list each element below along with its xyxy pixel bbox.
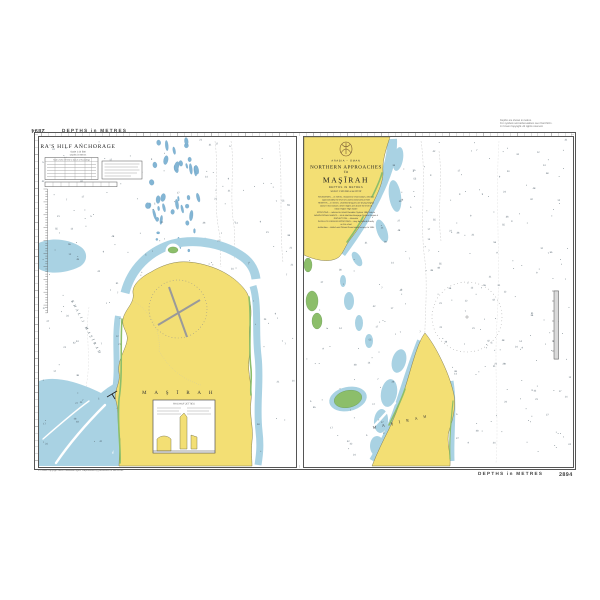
sounding-value: 31 — [231, 267, 234, 270]
chart-note-line: above Chart Datum; other heights are abo… — [320, 204, 372, 207]
sounding-value: 21 — [289, 246, 292, 249]
sounding-value: 17 — [390, 306, 393, 309]
coral-patch — [157, 206, 159, 211]
sounding-dot — [379, 321, 380, 322]
sounding-value: 55 — [312, 406, 315, 409]
sounding-value: 27 — [320, 280, 323, 283]
sounding-value: 14 — [339, 326, 342, 329]
sounding-value: 21 — [63, 346, 66, 349]
sounding-value: 48 — [430, 269, 433, 272]
sounding-dot — [557, 433, 558, 434]
sounding-dot — [255, 323, 256, 324]
sounding-dot — [127, 251, 128, 252]
sounding-dot — [268, 322, 269, 323]
sounding-dot — [506, 389, 507, 390]
sounding-value: 55 — [412, 168, 415, 171]
sounding-dot — [353, 417, 354, 418]
sounding-dot — [512, 260, 513, 261]
sounding-dot — [53, 194, 54, 195]
sounding-value: 14 — [564, 395, 567, 398]
sounding-value: 12 — [536, 150, 539, 153]
sounding-dot — [520, 398, 521, 399]
sounding-dot — [42, 259, 43, 260]
sounding-value: 12 — [557, 198, 560, 201]
sounding-dot — [106, 192, 107, 193]
sounding-value: 7 — [117, 291, 119, 294]
sounding-dot — [319, 309, 320, 310]
sounding-value: 21 — [449, 229, 452, 232]
sounding-value: 17 — [375, 325, 378, 328]
sounding-dot — [152, 250, 153, 251]
sounding-value: 9 — [521, 346, 523, 349]
sounding-value: 21 — [276, 380, 279, 383]
sounding-value: 36 — [456, 231, 459, 234]
sounding-dot — [561, 263, 562, 264]
coral-patch — [172, 146, 176, 154]
sounding-value: 21 — [439, 301, 442, 304]
sounding-dot — [372, 217, 373, 218]
sounding-dot — [141, 271, 142, 272]
sounding-dot — [530, 421, 531, 422]
green-patch-1 — [304, 258, 312, 272]
sounding-dot — [287, 204, 288, 205]
sounding-dot — [49, 274, 50, 275]
sounding-dot — [326, 327, 327, 328]
sounding-dot — [164, 152, 165, 153]
sounding-value: 48 — [353, 363, 356, 366]
country-label: ARABIA – OMAN — [331, 159, 360, 162]
sounding-value: 24 — [568, 443, 571, 446]
sounding-value: 9 — [150, 158, 152, 161]
sounding-value: 17 — [81, 195, 84, 198]
sounding-dot — [339, 388, 340, 389]
right-panel-map: 3642127245593121149521489142492455429724… — [304, 137, 573, 467]
sounding-dot — [549, 332, 550, 333]
sounding-value: 7 — [275, 200, 277, 203]
sounding-value: 21 — [160, 220, 163, 223]
sounding-value: 14 — [205, 175, 208, 178]
sounding-dot — [343, 283, 344, 284]
coral-patch — [162, 155, 168, 165]
sounding-dot — [284, 419, 285, 420]
sounding-dot — [536, 385, 537, 386]
sounding-dot — [552, 278, 553, 279]
sounding-value: 5 — [154, 202, 156, 205]
sounding-value: 36 — [76, 374, 79, 377]
sounding-value: 24 — [75, 339, 78, 342]
coral-patch — [187, 249, 189, 252]
sounding-dot — [152, 208, 153, 209]
sounding-dot — [253, 300, 254, 301]
sounding-dot — [371, 357, 372, 358]
depths-label: DEPTHS IN METRES — [328, 186, 362, 189]
islet-green — [168, 246, 178, 252]
chart-note-line: PROJECTION.....Mercator — [333, 216, 358, 219]
sounding-dot — [545, 343, 546, 344]
chart-number-bottom-right: 2894 — [559, 472, 573, 478]
sounding-dot — [414, 196, 415, 197]
sounding-value: 31 — [66, 314, 69, 317]
sounding-dot — [521, 265, 522, 266]
sounding-dot — [560, 259, 561, 260]
sounding-dot — [84, 218, 85, 219]
sounding-dot — [467, 282, 468, 283]
sounding-value: 7 — [65, 198, 67, 201]
sounding-value: 17 — [235, 222, 238, 225]
sounding-value: 42 — [372, 304, 375, 307]
sounding-value: 48 — [437, 266, 440, 269]
sounding-value: 14 — [427, 238, 430, 241]
scale-strip — [45, 182, 117, 187]
sounding-value: 17 — [176, 191, 179, 194]
sounding-value: 12 — [70, 227, 73, 230]
sounding-value: 36 — [287, 233, 290, 236]
sounding-dot — [484, 366, 485, 367]
sounding-value: 7 — [408, 257, 410, 260]
sounding-dot — [547, 159, 548, 160]
sounding-value: 42 — [533, 389, 536, 392]
coral-patch — [155, 195, 160, 203]
sounding-dot — [378, 351, 379, 352]
sounding-value: 9 — [481, 192, 483, 195]
sounding-dot — [54, 249, 55, 250]
sounding-value: 31 — [364, 241, 367, 244]
sounding-dot — [475, 293, 476, 294]
sounding-value: 12 — [470, 286, 473, 289]
sounding-value: 21 — [439, 325, 442, 328]
sounding-dot — [452, 366, 453, 367]
sounding-value: 42 — [530, 197, 533, 200]
sounding-dot — [525, 408, 526, 409]
left-panel-title: RA'S HILF ANCHORAGE — [40, 144, 115, 150]
sounding-dot — [273, 246, 274, 247]
title-line-3: MAŞĪRAH — [322, 175, 368, 184]
sounding-value: 9 — [469, 214, 471, 217]
inset-title: RA'S HILF JETTIES — [173, 402, 195, 405]
sounding-dot — [221, 232, 222, 233]
coral-patch — [185, 163, 188, 168]
sounding-value: 9 — [274, 312, 276, 315]
sounding-dot — [401, 191, 402, 192]
sounding-dot — [450, 199, 451, 200]
coral-patch — [155, 238, 157, 240]
sounding-value: 21 — [488, 275, 491, 278]
sounding-dot — [437, 293, 438, 294]
sounding-dot — [43, 441, 44, 442]
sounding-value: 12 — [464, 299, 467, 302]
chart-note-line: NAVIGATIONAL MARKS.....IALA Maritime Buo… — [313, 213, 378, 216]
sounding-value: 48 — [501, 338, 504, 341]
sounding-dot — [243, 189, 244, 190]
sounding-value: 48 — [444, 340, 447, 343]
sounding-value: 42 — [41, 180, 44, 183]
sounding-dot — [479, 189, 480, 190]
sounding-dot — [276, 418, 277, 419]
sounding-dot — [551, 215, 552, 216]
sounding-dot — [486, 347, 487, 348]
sounding-value: 7 — [464, 309, 466, 312]
sounding-dot — [456, 222, 457, 223]
sounding-dot — [270, 183, 271, 184]
sounding-dot — [490, 421, 491, 422]
sounding-dot — [378, 419, 379, 420]
sounding-dot — [58, 232, 59, 233]
sounding-value: 31 — [497, 284, 500, 287]
sounding-dot — [480, 329, 481, 330]
sounding-dot — [106, 302, 107, 303]
sounding-dot — [84, 209, 85, 210]
sounding-value: 24 — [515, 345, 518, 348]
sounding-value: 7 — [284, 342, 286, 345]
sounding-dot — [358, 348, 359, 349]
sounding-value: 24 — [353, 453, 356, 456]
sounding-dot — [461, 174, 462, 175]
sounding-dot — [514, 296, 515, 297]
sounding-value: 9 — [102, 250, 104, 253]
sounding-dot — [254, 186, 255, 187]
sounding-value: 55 — [493, 241, 496, 244]
sounding-value: 17 — [215, 142, 218, 145]
sounding-dot — [560, 433, 561, 434]
sounding-dot — [474, 142, 475, 143]
tidal-table-title: Tidal Levels referred to Datum of Soundi… — [53, 158, 90, 161]
sounding-dot — [353, 270, 354, 271]
sounding-dot — [425, 270, 426, 271]
island-name-label: M A Ş Ī R A H — [142, 390, 216, 396]
chart-note-line: on this chart — [340, 222, 352, 225]
sounding-dot — [164, 238, 165, 239]
sounding-value: 48 — [545, 171, 548, 174]
sounding-value: 9 — [227, 177, 229, 180]
sounding-value: 42 — [399, 289, 402, 292]
sounding-value: 9 — [511, 219, 513, 222]
sounding-dot — [464, 234, 465, 235]
sounding-value: 48 — [400, 198, 403, 201]
inset-pier-east — [191, 435, 197, 449]
sounding-dot — [208, 263, 209, 264]
sounding-value: 24 — [506, 170, 509, 173]
sounding-dot — [76, 242, 77, 243]
coral-patch — [173, 161, 180, 171]
sounding-value: 55 — [55, 227, 58, 230]
sounding-dot — [189, 260, 190, 261]
sounding-dot — [481, 287, 482, 288]
sounding-value: 42 — [487, 339, 490, 342]
sounding-dot — [61, 311, 62, 312]
sounding-value: 21 — [266, 231, 269, 234]
chart-note-line: HEIGHTS.....in metres. Underlined figure… — [318, 201, 374, 204]
sounding-dot — [77, 392, 78, 393]
coral-patch — [193, 228, 195, 233]
coral-patch — [156, 231, 159, 233]
sounding-value: 9 — [467, 441, 469, 444]
sounding-dot — [58, 364, 59, 365]
sounding-value: 31 — [208, 143, 211, 146]
sounding-value: 5 — [42, 161, 44, 164]
sounding-dot — [521, 380, 522, 381]
sounding-dot — [528, 420, 529, 421]
sounding-dot — [215, 189, 216, 190]
sounding-dot — [438, 251, 439, 252]
sounding-dot — [248, 261, 249, 262]
sounding-value: 36 — [202, 221, 205, 224]
sounding-dot — [136, 198, 137, 199]
sounding-value: 5 — [456, 413, 458, 416]
sounding-value: 48 — [454, 370, 457, 373]
sounding-dot — [159, 240, 160, 241]
sounding-value: 9 — [458, 192, 460, 195]
chart-note-line: approximately the level of Lowest Astron… — [322, 198, 371, 201]
sounding-value: 9 — [259, 220, 261, 223]
sounding-dot — [495, 415, 496, 416]
sounding-value: 55 — [438, 262, 441, 265]
sounding-value: 27 — [46, 320, 49, 323]
sounding-dot — [553, 390, 554, 391]
sounding-dot — [489, 158, 490, 159]
sounding-dot — [530, 335, 531, 336]
sounding-dot — [543, 319, 544, 320]
sounding-dot — [174, 201, 175, 202]
sounding-dot — [349, 409, 350, 410]
sounding-value: 14 — [291, 379, 294, 382]
sounding-value: 12 — [568, 376, 571, 379]
sounding-dot — [63, 155, 64, 156]
sounding-dot — [495, 318, 496, 319]
sounding-dot — [405, 303, 406, 304]
coral-patch — [170, 209, 174, 214]
sounding-dot — [395, 333, 396, 334]
sounding-dot — [63, 306, 64, 307]
sounding-dot — [85, 225, 86, 226]
sounding-dot — [384, 321, 385, 322]
sounding-dot — [478, 371, 479, 372]
coral-patch — [161, 203, 165, 212]
coral-patch — [156, 139, 161, 145]
sounding-dot — [285, 250, 286, 251]
sounding-dot — [114, 244, 115, 245]
sounding-dot — [555, 447, 556, 448]
sounding-value: 42 — [492, 298, 495, 301]
sounding-value: 42 — [349, 442, 352, 445]
sounding-value: 7 — [285, 273, 287, 276]
inset-pier-center — [180, 413, 187, 449]
top-right-margin-notes: Depths are shown in metres.For symbols a… — [500, 119, 578, 129]
left-panel-subtitle1: Scale 1:12 500 — [70, 150, 86, 153]
sounding-dot — [139, 232, 140, 233]
sounding-value: 7 — [381, 286, 383, 289]
coral-patch — [187, 156, 191, 161]
sounding-dot — [488, 196, 489, 197]
sounding-dot — [502, 151, 503, 152]
coral-patch — [188, 210, 193, 221]
sounding-value: 5 — [310, 400, 312, 403]
sounding-dot — [140, 274, 141, 275]
right-panel-northern-approaches: 3642127245593121149521489142492455429724… — [303, 136, 574, 468]
sounding-dot — [380, 386, 381, 387]
sounding-value: 5 — [490, 341, 492, 344]
sounding-value: 55 — [433, 218, 436, 221]
sounding-dot — [321, 399, 322, 400]
coral-patch — [152, 161, 157, 167]
bottom-margin-depths-label: DEPTHS in METRES — [478, 471, 543, 476]
sounding-value: 5 — [229, 144, 231, 147]
sounding-dot — [501, 431, 502, 432]
sounding-dot — [110, 289, 111, 290]
sounding-value: 17 — [372, 403, 375, 406]
sounding-dot — [277, 317, 278, 318]
sounding-dot — [562, 149, 563, 150]
sounding-dot — [260, 450, 261, 451]
sounding-value: 9 — [430, 173, 432, 176]
coral-patch — [148, 179, 154, 186]
sounding-value: 31 — [564, 138, 567, 141]
chart-note-line: Authorities.....British and Omani Govern… — [317, 226, 374, 229]
sounding-value: 55 — [281, 199, 284, 202]
sounding-dot — [120, 183, 121, 184]
sounding-dot — [329, 346, 330, 347]
sounding-dot — [465, 191, 466, 192]
sounding-value: 14 — [367, 361, 370, 364]
sounding-value: 21 — [57, 214, 60, 217]
sounding-value: 14 — [542, 164, 545, 167]
left-panel-map: 1727273672121247172417243621217121431422… — [39, 137, 296, 467]
sounding-dot — [553, 209, 554, 210]
sounding-value: 31 — [115, 281, 118, 284]
sounding-dot — [438, 142, 439, 143]
sounding-dot — [306, 358, 307, 359]
sounding-dot — [401, 293, 402, 294]
inset-pier-west — [157, 436, 171, 451]
sounding-dot — [558, 176, 559, 177]
sounding-value: 9 — [536, 271, 538, 274]
sounding-dot — [464, 343, 465, 344]
sounding-dot — [562, 333, 563, 334]
sounding-value: 5 — [90, 214, 92, 217]
sounding-dot — [211, 262, 212, 263]
sounding-dot — [563, 168, 564, 169]
sounding-dot — [526, 184, 527, 185]
sounding-dot — [337, 435, 338, 436]
sounding-value: 12 — [503, 290, 506, 293]
sounding-value: 48 — [475, 429, 478, 432]
coral-patch — [185, 204, 189, 208]
sounding-value: 27 — [456, 436, 459, 439]
scale-label: SCALE 1:100 000 at lat 20°40' — [330, 190, 362, 193]
chart-note-line: SOUNDINGS.....in metres, reduced to Char… — [318, 195, 374, 198]
coral-patch — [188, 163, 192, 174]
sounding-dot — [476, 423, 477, 424]
jetty-inset-panel: RA'S HILF JETTIES — [153, 400, 215, 453]
sounding-dot — [104, 158, 105, 159]
sounding-dot — [531, 415, 532, 416]
sounding-value: 24 — [503, 190, 506, 193]
sounding-dot — [424, 246, 425, 247]
sounding-value: 7 — [377, 377, 379, 380]
sounding-dot — [235, 267, 236, 268]
sounding-dot — [424, 166, 425, 167]
sounding-value: 42 — [97, 270, 100, 273]
sounding-dot — [314, 363, 315, 364]
sounding-dot — [486, 344, 487, 345]
sounding-dot — [206, 170, 207, 171]
coral-patch — [164, 140, 168, 151]
sounding-value: 21 — [214, 197, 217, 200]
sounding-value: 21 — [290, 263, 293, 266]
sounding-dot — [504, 363, 505, 364]
sounding-dot — [62, 294, 63, 295]
compass-center-mark — [465, 315, 469, 319]
sounding-value: 7 — [419, 330, 421, 333]
